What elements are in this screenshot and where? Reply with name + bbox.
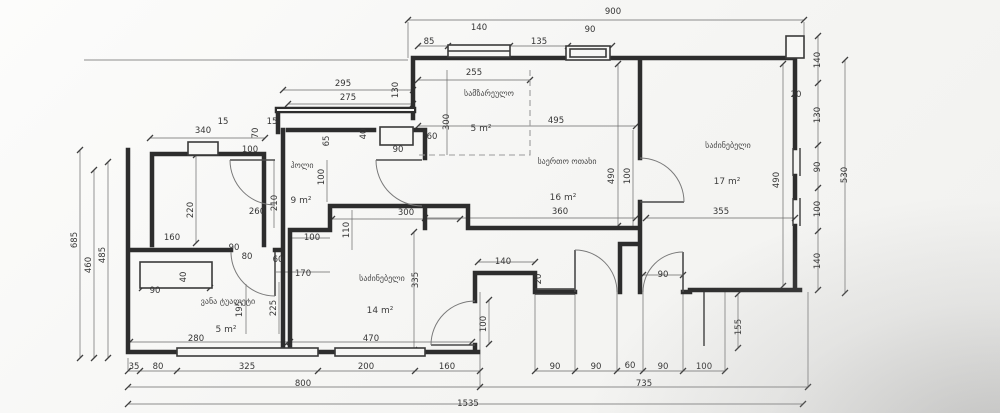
- dimension-label: 100: [813, 201, 823, 217]
- dimension-label: 490: [607, 168, 617, 184]
- bath-duct: [140, 262, 212, 288]
- floor-plan-drawing: 9008514013590255295275130340157015100654…: [0, 0, 1000, 413]
- dimension-label: 160: [164, 233, 180, 243]
- dimension-label: 800: [295, 379, 311, 389]
- dimension-label: 300: [398, 208, 414, 218]
- window-top-2-inner: [570, 49, 606, 57]
- dimension-label: 90: [550, 362, 561, 372]
- room-area-label: 16 m²: [550, 193, 577, 203]
- dimension-label: 130: [813, 107, 823, 123]
- dimension-label: 685: [70, 232, 80, 248]
- dimension-label: 90: [585, 25, 596, 35]
- dimension-label: 360: [552, 207, 568, 217]
- door-arc-corridor-1: [575, 250, 617, 292]
- dimension-label: 135: [531, 37, 547, 47]
- kitchen-dashed-boundary: [418, 70, 530, 155]
- dimension-label: 100: [304, 233, 320, 243]
- room-name-label: სამზარეულო: [464, 88, 514, 98]
- room-area-label: 9 m²: [291, 196, 312, 206]
- dimension-label: 90: [591, 362, 602, 372]
- walls: [128, 58, 800, 352]
- door-arc-bedroom14: [431, 301, 475, 345]
- dimension-label: 90: [229, 243, 240, 253]
- dimension-label: 255: [466, 68, 482, 78]
- room-name-label: საერთო ოთახი: [538, 156, 597, 166]
- dimension-label: 280: [188, 334, 204, 344]
- dimension-label: 90: [658, 362, 669, 372]
- dimension-label: 460: [84, 257, 94, 273]
- door-arc-entry-hall: [230, 160, 275, 205]
- dimension-label: 355: [713, 207, 729, 217]
- dimension-label: 735: [636, 379, 652, 389]
- dimension-label: 100: [479, 316, 489, 332]
- dimension-label: 140: [471, 23, 487, 33]
- wall-tab-top-right: [786, 36, 804, 58]
- dimension-label: 15: [267, 117, 278, 127]
- dimension-label: 35: [129, 362, 140, 372]
- dimension-label: 90: [813, 162, 823, 173]
- dimension-label: 225: [269, 300, 279, 316]
- dimension-label: 90: [150, 286, 161, 296]
- dimension-label: 275: [340, 93, 356, 103]
- dimension-label: 130: [391, 82, 401, 98]
- dimension-label: 40: [359, 129, 369, 140]
- dimension-label: 110: [342, 222, 352, 238]
- dimension-label: 20: [534, 274, 544, 285]
- dimension-label: 200: [358, 362, 374, 372]
- dimension-label: 300: [442, 114, 452, 130]
- dimension-label: 210: [270, 195, 280, 211]
- dimension-label: 20: [791, 90, 802, 100]
- door-arc-bath: [231, 252, 275, 296]
- dimension-label: 60: [625, 361, 636, 371]
- dimension-label: 325: [239, 362, 255, 372]
- window-bottom-1: [177, 348, 318, 356]
- dimension-label: 140: [813, 253, 823, 269]
- room-area-label: 17 m²: [714, 177, 741, 187]
- dimension-label: 40: [179, 272, 189, 283]
- room-area-label: 14 m²: [367, 306, 394, 316]
- dimension-label: 900: [605, 7, 621, 17]
- room-area-label: 5 m²: [216, 325, 237, 335]
- dimension-label: 100: [696, 362, 712, 372]
- dimension-label: 60: [427, 132, 438, 142]
- room-name-label: საძინებელი: [705, 140, 751, 150]
- dimension-label: 530: [840, 167, 850, 183]
- door-arc-bedroom17: [640, 158, 684, 202]
- dimension-label: 15: [218, 117, 229, 127]
- dimension-label: 80: [242, 252, 253, 262]
- door-arc-hall-living: [376, 160, 422, 206]
- window-bottom-2: [335, 348, 425, 356]
- dimension-label: 80: [153, 362, 164, 372]
- dimension-label: 160: [439, 362, 455, 372]
- dimension-label: 140: [495, 257, 511, 267]
- dimension-label: 470: [363, 334, 379, 344]
- dimension-label: 340: [195, 126, 211, 136]
- dimension-label: 100: [242, 145, 258, 155]
- dimension-label: 335: [411, 272, 421, 288]
- dimension-label: 90: [393, 145, 404, 155]
- dimension-label: 65: [322, 136, 332, 147]
- room-name-label: ჰოლი: [290, 160, 313, 170]
- hall-duct: [380, 127, 413, 145]
- dimension-label: 100: [317, 169, 327, 185]
- dimension-label: 260: [249, 207, 265, 217]
- room-name-label: ვანა ტუალეტი: [201, 296, 255, 306]
- wall-tab-balcony: [188, 142, 218, 155]
- dimension-label: 485: [98, 247, 108, 263]
- dimension-label: 495: [548, 116, 564, 126]
- dimension-label: 140: [813, 52, 823, 68]
- dimension-label: 85: [424, 37, 435, 47]
- floorplan-canvas: 9008514013590255295275130340157015100654…: [0, 0, 1000, 413]
- dimension-label: 490: [772, 172, 782, 188]
- dimension-label: 170: [295, 269, 311, 279]
- dimension-label: 295: [335, 79, 351, 89]
- dimension-label: 70: [251, 128, 261, 139]
- dimension-label: 155: [734, 319, 744, 335]
- dimension-label: 60: [273, 255, 284, 265]
- doors: [230, 158, 684, 345]
- dimension-label: 90: [658, 270, 669, 280]
- room-area-label: 5 m²: [471, 124, 492, 134]
- dimension-label: 100: [623, 168, 633, 184]
- dimension-label: 1535: [457, 399, 479, 409]
- dimension-label: 220: [186, 202, 196, 218]
- room-name-label: საძინებელი: [359, 273, 405, 283]
